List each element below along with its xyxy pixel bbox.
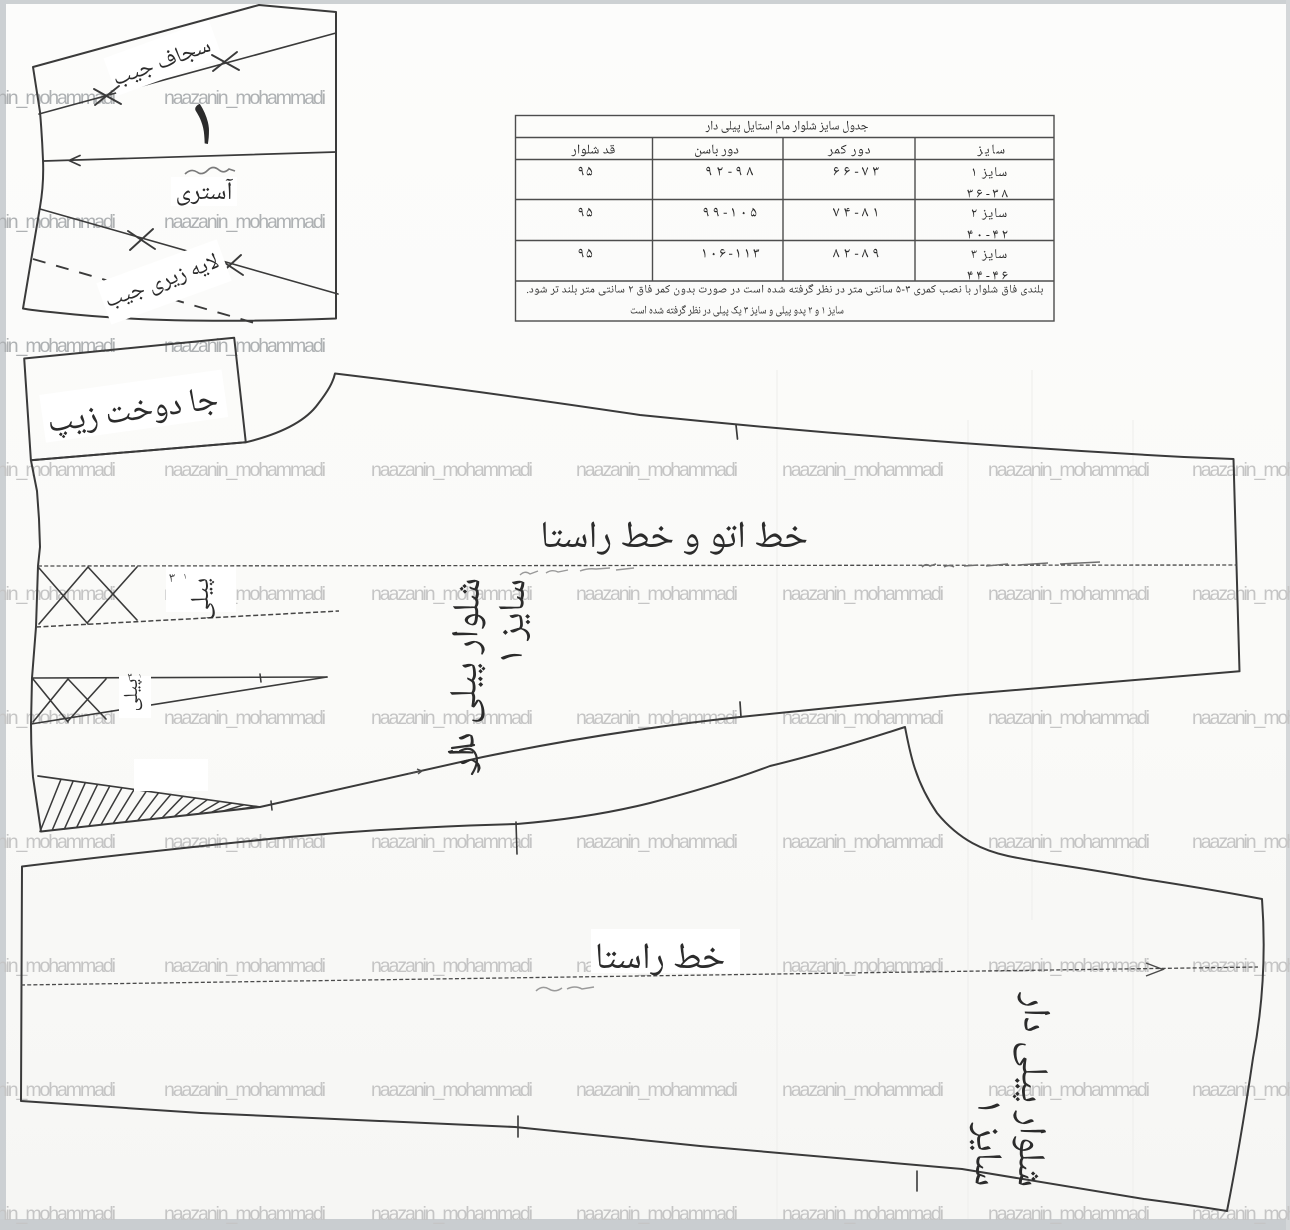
svg-text:naazanin_mohammadi: naazanin_mohammadi bbox=[782, 831, 944, 853]
svg-text:naazanin_mohammadi: naazanin_mohammadi bbox=[371, 1203, 533, 1225]
svg-text:naazanin_mohammadi: naazanin_mohammadi bbox=[1192, 831, 1290, 853]
svg-text:naazanin_mohammadi: naazanin_mohammadi bbox=[1192, 583, 1290, 605]
svg-text:naazanin_mohammadi: naazanin_mohammadi bbox=[576, 1203, 738, 1225]
svg-text:naazanin_mohammadi: naazanin_mohammadi bbox=[164, 87, 326, 109]
svg-text:naazanin_mohammadi: naazanin_mohammadi bbox=[1192, 1203, 1290, 1225]
svg-text:naazanin_mohammadi: naazanin_mohammadi bbox=[576, 1079, 738, 1101]
svg-text:naazanin_mohammadi: naazanin_mohammadi bbox=[164, 707, 326, 729]
svg-text:naazanin_mohammadi: naazanin_mohammadi bbox=[371, 831, 533, 853]
svg-text:naazanin_mohammadi: naazanin_mohammadi bbox=[988, 707, 1150, 729]
svg-text:naazanin_mohammadi: naazanin_mohammadi bbox=[164, 335, 326, 357]
svg-text:naazanin_mohammadi: naazanin_mohammadi bbox=[0, 335, 116, 357]
svg-text:naazanin_mohammadi: naazanin_mohammadi bbox=[988, 459, 1150, 481]
svg-text:naazanin_mohammadi: naazanin_mohammadi bbox=[1192, 955, 1290, 977]
svg-text:naazanin_mohammadi: naazanin_mohammadi bbox=[988, 583, 1150, 605]
svg-text:naazanin_mohammadi: naazanin_mohammadi bbox=[0, 1079, 116, 1101]
svg-text:naazanin_mohammadi: naazanin_mohammadi bbox=[371, 707, 533, 729]
svg-text:naazanin_mohammadi: naazanin_mohammadi bbox=[1192, 1079, 1290, 1101]
svg-text:naazanin_mohammadi: naazanin_mohammadi bbox=[782, 459, 944, 481]
svg-text:naazanin_mohammadi: naazanin_mohammadi bbox=[371, 459, 533, 481]
svg-text:naazanin_mohammadi: naazanin_mohammadi bbox=[576, 583, 738, 605]
svg-text:naazanin_mohammadi: naazanin_mohammadi bbox=[576, 707, 738, 729]
svg-text:naazanin_mohammadi: naazanin_mohammadi bbox=[782, 1079, 944, 1101]
svg-text:naazanin_mohammadi: naazanin_mohammadi bbox=[164, 955, 326, 977]
svg-text:naazanin_mohammadi: naazanin_mohammadi bbox=[371, 583, 533, 605]
svg-text:naazanin_mohammadi: naazanin_mohammadi bbox=[782, 1203, 944, 1225]
svg-text:naazanin_mohammadi: naazanin_mohammadi bbox=[782, 583, 944, 605]
svg-text:naazanin_mohammadi: naazanin_mohammadi bbox=[164, 1079, 326, 1101]
svg-text:naazanin_mohammadi: naazanin_mohammadi bbox=[0, 1203, 116, 1225]
svg-text:naazanin_mohammadi: naazanin_mohammadi bbox=[1192, 707, 1290, 729]
svg-text:naazanin_mohammadi: naazanin_mohammadi bbox=[164, 1203, 326, 1225]
svg-text:naazanin_mohammadi: naazanin_mohammadi bbox=[988, 1079, 1150, 1101]
svg-text:naazanin_mohammadi: naazanin_mohammadi bbox=[988, 955, 1150, 977]
svg-text:naazanin_mohammadi: naazanin_mohammadi bbox=[164, 459, 326, 481]
svg-text:naazanin_mohammadi: naazanin_mohammadi bbox=[0, 955, 116, 977]
svg-text:naazanin_mohammadi: naazanin_mohammadi bbox=[371, 1079, 533, 1101]
svg-text:naazanin_mohammadi: naazanin_mohammadi bbox=[988, 1203, 1150, 1225]
svg-text:naazanin_mohammadi: naazanin_mohammadi bbox=[782, 955, 944, 977]
svg-text:naazanin_mohammadi: naazanin_mohammadi bbox=[0, 459, 116, 481]
svg-text:naazanin_mohammadi: naazanin_mohammadi bbox=[988, 831, 1150, 853]
svg-text:naazanin_mohammadi: naazanin_mohammadi bbox=[371, 955, 533, 977]
svg-text:naazanin_mohammadi: naazanin_mohammadi bbox=[576, 831, 738, 853]
svg-text:naazanin_mohammadi: naazanin_mohammadi bbox=[0, 831, 116, 853]
svg-text:naazanin_mohammadi: naazanin_mohammadi bbox=[164, 211, 326, 233]
svg-text:naazanin_mohammadi: naazanin_mohammadi bbox=[576, 459, 738, 481]
svg-text:naazanin_mohammadi: naazanin_mohammadi bbox=[1192, 459, 1290, 481]
